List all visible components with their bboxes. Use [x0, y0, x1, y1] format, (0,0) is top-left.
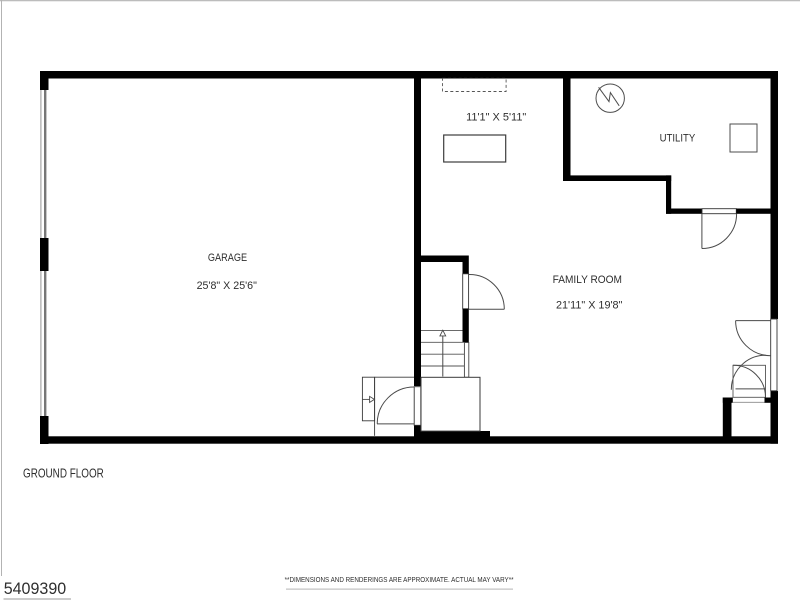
svg-text:FAMILY ROOM: FAMILY ROOM — [553, 274, 622, 286]
svg-text:UTILITY: UTILITY — [660, 133, 696, 145]
svg-text:11'1" X 5'11": 11'1" X 5'11" — [466, 111, 526, 123]
svg-text:25'8" X 25'6": 25'8" X 25'6" — [197, 280, 257, 292]
svg-text:GARAGE: GARAGE — [208, 252, 247, 264]
svg-text:5409390: 5409390 — [4, 580, 66, 598]
svg-text:21'11" X 19'8": 21'11" X 19'8" — [556, 300, 622, 312]
svg-text:**DIMENSIONS AND RENDERINGS AR: **DIMENSIONS AND RENDERINGS ARE APPROXIM… — [285, 576, 514, 584]
svg-text:GROUND FLOOR: GROUND FLOOR — [23, 467, 104, 481]
